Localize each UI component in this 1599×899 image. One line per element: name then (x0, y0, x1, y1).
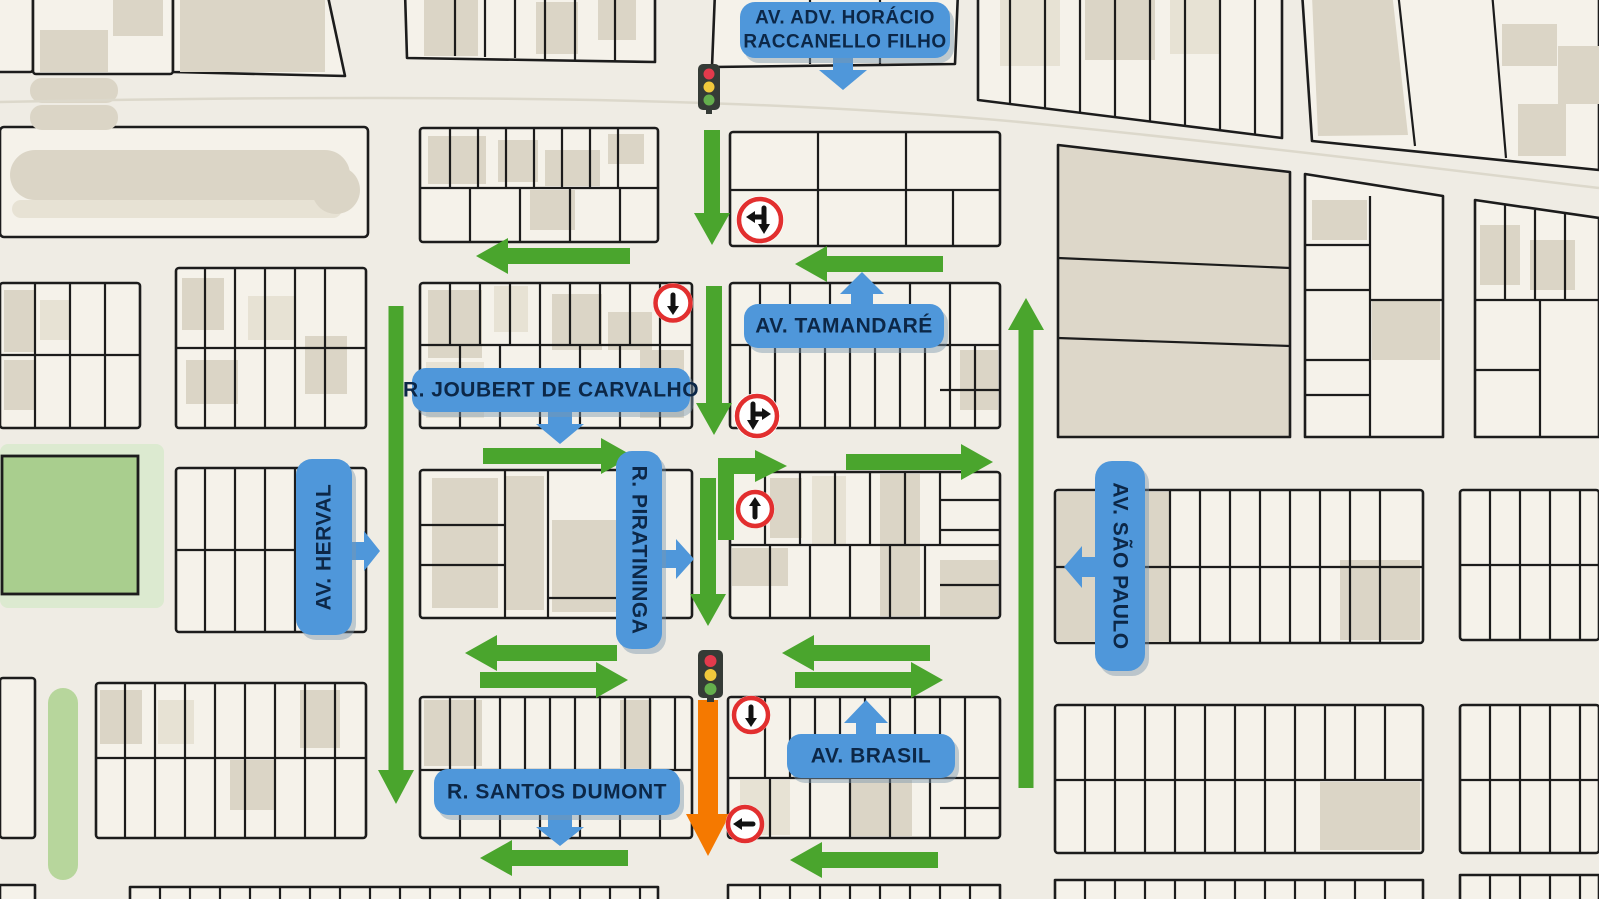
street-label-av-herval: AV. HERVAL (296, 459, 380, 640)
one-way-arrow-east-1 (483, 438, 633, 474)
street-label-text: AV. TAMANDARÉ (755, 315, 933, 338)
one-way-arrow-east-4 (795, 662, 943, 698)
street-label-r-joubert-de-carvalho: R. JOUBERT DE CARVALHO (403, 368, 699, 444)
sign-straight-only-down-icon (653, 283, 693, 323)
sign-straight-only-up-icon (736, 490, 775, 529)
one-way-arrow-west-2 (795, 246, 943, 282)
park-block (2, 456, 138, 594)
one-way-arrow-east-3 (480, 662, 628, 698)
one-way-arrow-west-6 (790, 842, 938, 878)
sign-straight-or-right-icon (734, 393, 780, 439)
one-way-arrow-south-top (694, 130, 730, 245)
street-label-text: R. JOUBERT DE CARVALHO (403, 379, 699, 402)
traffic-flow-map: AV. ADV. HORÁCIO RACCANELLO FILHO AV. TA… (0, 0, 1599, 899)
street-label-text: R. SANTOS DUMONT (447, 781, 667, 804)
sign-straight-only-down-icon (732, 696, 771, 735)
street-label-text: AV. ADV. HORÁCIO (755, 7, 935, 29)
one-way-arrow-south-mid (696, 286, 732, 435)
traffic-light-icon (698, 64, 720, 114)
street-label-text: AV. SÃO PAULO (1109, 482, 1132, 649)
street-label-text: AV. BRASIL (811, 745, 932, 768)
one-way-arrow-west-5 (480, 840, 628, 876)
sign-straight-or-left-icon (736, 196, 784, 244)
street-label-text: R. PIRATININGA (628, 466, 651, 635)
street-label-av-horacio-raccanello: AV. ADV. HORÁCIO RACCANELLO FILHO (740, 2, 954, 90)
traffic-light-icon (698, 650, 723, 702)
one-way-arrow-west-3 (465, 635, 617, 671)
one-way-arrow-west-1 (476, 238, 630, 274)
one-way-arrow-north-sao-paulo (1008, 298, 1044, 788)
green-median-strip (48, 688, 78, 880)
one-way-arrow-west-4 (782, 635, 930, 671)
street-label-text: AV. HERVAL (313, 484, 336, 611)
sign-left-only-icon (726, 805, 765, 844)
street-label-text: RACCANELLO FILHO (743, 32, 946, 53)
